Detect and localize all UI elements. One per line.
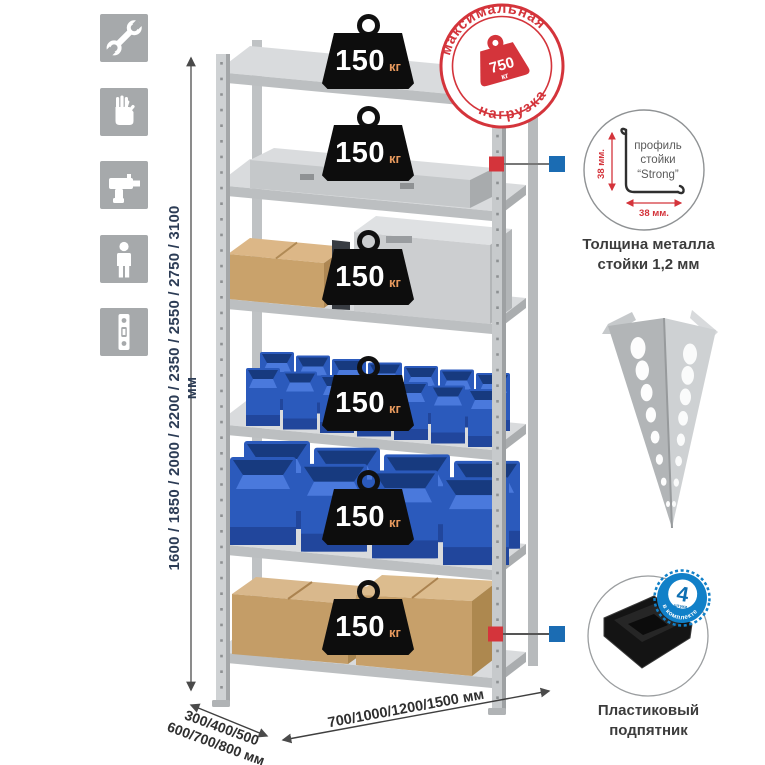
height-dimension-label: 1600 / 1850 / 2000 / 2200 / 2350 / 2550 …	[166, 203, 186, 573]
max-load-stamp: максимальная нагрузка 750 кг	[438, 2, 566, 130]
shelf-load-badge: 150кг	[322, 580, 414, 655]
plastic-foot-detail: 4 штуки в комплекте	[580, 558, 725, 708]
svg-text:38 мм.: 38 мм.	[639, 208, 669, 219]
weight-icon: 150кг	[322, 249, 414, 305]
svg-text:профиль: профиль	[634, 140, 682, 152]
foot-callout-connector	[488, 626, 565, 642]
weight-icon: 150кг	[322, 599, 414, 655]
svg-text:“Strong”: “Strong”	[637, 169, 679, 181]
profile-detail-circle: 38 мм. 38 мм. профиль стойки “Strong”	[580, 106, 708, 234]
weight-icon: 150кг	[322, 125, 414, 181]
upright-corner-profile-image	[592, 296, 747, 541]
svg-text:стойки: стойки	[640, 154, 675, 166]
profile-callout-connector	[489, 156, 565, 172]
weight-icon: 150кг	[322, 375, 414, 431]
svg-text:38 мм.: 38 мм.	[596, 149, 607, 179]
shelf-load-badge: 150кг	[322, 106, 414, 181]
shelf-load-badge: 150кг	[322, 14, 414, 89]
product-infographic: 1600 / 1850 / 2000 / 2200 / 2350 / 2550 …	[0, 0, 765, 765]
shelf-load-badge: 150кг	[322, 470, 414, 545]
foot-caption: Пластиковый подпятник	[566, 701, 731, 742]
weight-icon: 150кг	[322, 489, 414, 545]
profile-caption: Толщина металла стойки 1,2 мм	[566, 235, 731, 276]
weight-icon: 150кг	[322, 33, 414, 89]
shelf-load-badge: 150кг	[322, 230, 414, 305]
shelf-load-badge: 150кг	[322, 356, 414, 431]
